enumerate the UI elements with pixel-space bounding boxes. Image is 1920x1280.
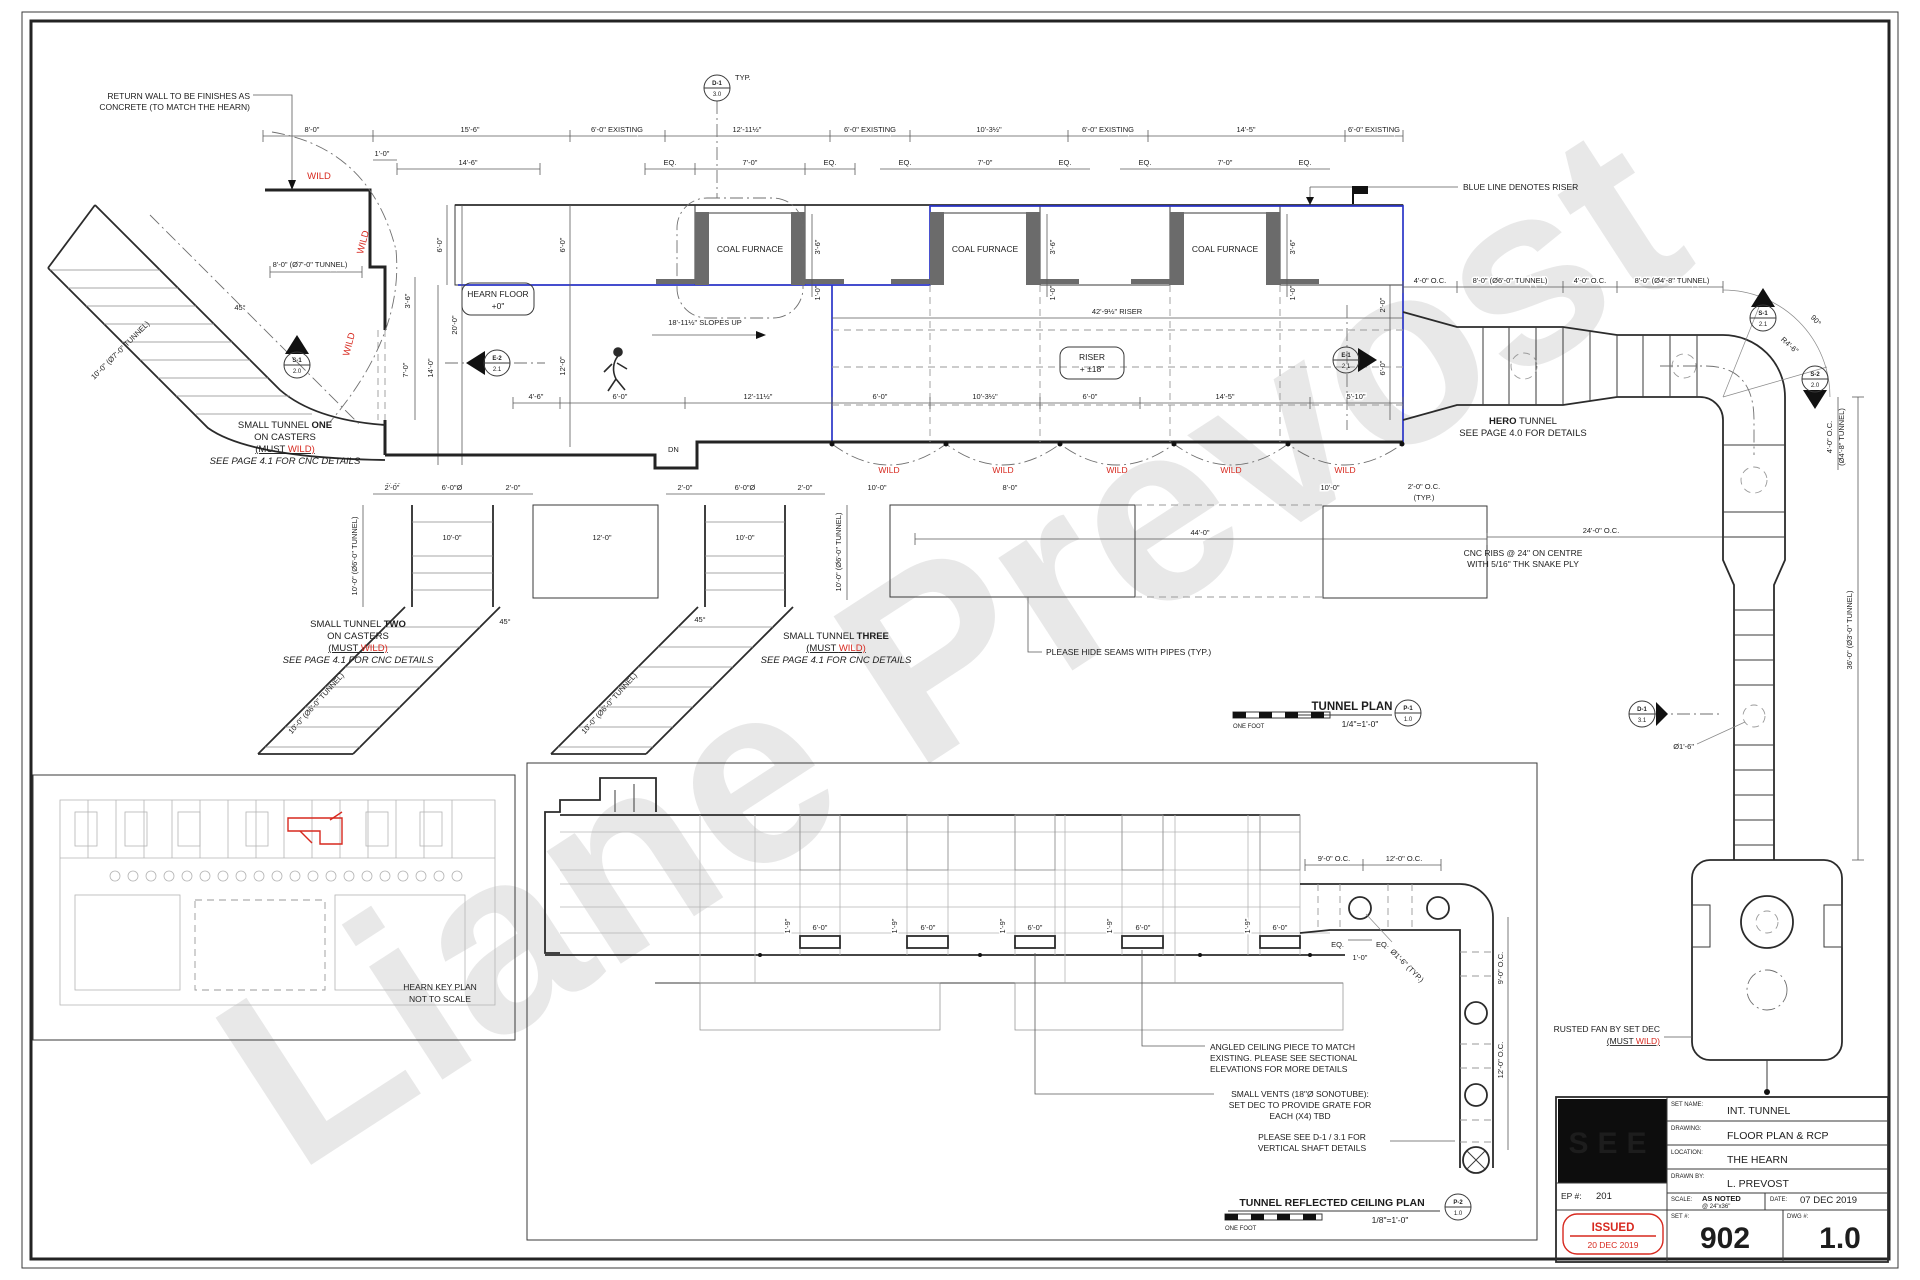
dim-label: 7'-0": [401, 362, 410, 377]
set-number: 902: [1700, 1222, 1750, 1255]
svg-text:1/8"=1'-0": 1/8"=1'-0": [1372, 1215, 1409, 1225]
svg-text:2.1: 2.1: [1759, 322, 1768, 328]
svg-text:TUNNEL PLAN: TUNNEL PLAN: [1312, 701, 1393, 713]
dim-label: 1'-0": [1288, 285, 1297, 300]
field-label: SET #:: [1671, 1214, 1690, 1220]
svg-text:Ø1'-6" (TYP.): Ø1'-6" (TYP.): [1389, 947, 1427, 985]
coal-furnace-3: COAL FURNACE EQ. 7'-0" EQ. 3'-6" 1'-0": [1120, 158, 1330, 300]
date-value: 07 DEC 2019: [1800, 1195, 1857, 1206]
svg-text:1.0: 1.0: [1404, 717, 1413, 723]
dim-label: 1'-0": [813, 285, 822, 300]
svg-text:HEARN FLOOR: HEARN FLOOR: [467, 289, 528, 299]
furnace-label: COAL FURNACE: [952, 244, 1019, 254]
dim-label: 15'-6": [460, 125, 479, 134]
dim-label: 6'-0"Ø: [735, 483, 756, 492]
svg-text:9'-0" O.C.: 9'-0" O.C.: [1318, 854, 1350, 863]
svg-text:(MUST WILD): (MUST WILD): [806, 643, 865, 654]
coal-furnaces: COAL FURNACE EQ. 7'-0" EQ. 3'-6" 1'-0" C…: [645, 158, 1330, 300]
dim-label: 8'-0" (Ø7'-0" TUNNEL): [273, 260, 348, 269]
svg-text:(MUST WILD): (MUST WILD): [1607, 1036, 1660, 1046]
marker-e2-21: E-2 2.1: [445, 350, 545, 376]
dim-label: 10'-0" (Ø6'-0" TUNNEL): [286, 671, 346, 736]
field-label: LOCATION:: [1671, 1150, 1703, 1156]
dim-label: 4'-0" O.C.: [1414, 276, 1446, 285]
dim-label: 10'-0" (Ø6'-0" TUNNEL): [834, 512, 843, 591]
svg-text:(MUST WILD): (MUST WILD): [255, 444, 314, 455]
dim-label: 6'-0" EXISTING: [1348, 125, 1400, 134]
dim-label: R4'-6": [1779, 335, 1800, 356]
svg-text:1'-9": 1'-9": [1105, 918, 1114, 933]
vent-grate: [800, 936, 840, 948]
field-label: DRAWN BY:: [1671, 1174, 1705, 1180]
svg-text:ONE FOOT: ONE FOOT: [1233, 724, 1265, 730]
dim-label: 4'-6": [529, 392, 544, 401]
rcp-marker-id: P-2: [1453, 1200, 1463, 1206]
svg-text:1'-9": 1'-9": [890, 918, 899, 933]
svg-text:2.0: 2.0: [293, 369, 302, 375]
tunnel-one-label: SMALL TUNNEL: [238, 420, 312, 431]
typ-label: TYP.: [735, 73, 751, 82]
dim-label: 12'-0": [558, 356, 567, 375]
field-label: DWG #:: [1787, 1214, 1809, 1220]
scale-figure: [604, 348, 627, 391]
svg-text:12'-0" O.C.: 12'-0" O.C.: [1386, 854, 1423, 863]
svg-text:SEE PAGE 4.1 FOR CNC DETAILS: SEE PAGE 4.1 FOR CNC DETAILS: [761, 655, 912, 666]
svg-text:S-1: S-1: [292, 358, 302, 364]
dwg-number: 1.0: [1819, 1222, 1861, 1255]
dim-label: 4'-0" O.C.: [1825, 421, 1834, 453]
svg-text:TUNNEL REFLECTED CEILING PLAN: TUNNEL REFLECTED CEILING PLAN: [1239, 1197, 1424, 1209]
vent-grate: [1015, 936, 1055, 948]
dim-label: 6'-0": [558, 237, 567, 252]
dim-label: (Ø4'-8" TUNNEL): [1837, 408, 1846, 466]
dn-label: DN: [668, 445, 679, 454]
svg-text:S-2: S-2: [1810, 372, 1820, 378]
dim-label: 14'-5": [1215, 392, 1234, 401]
see-logo-text: SEE: [1568, 1127, 1655, 1160]
coal-furnace-1: COAL FURNACE EQ. 7'-0" EQ. 3'-6" 1'-0": [645, 158, 855, 300]
svg-text:NOT TO SCALE: NOT TO SCALE: [409, 994, 471, 1004]
dim-label: 24'-0" O.C.: [1583, 526, 1620, 535]
detail-marker-id: D-1: [712, 81, 722, 87]
field-label: EP #:: [1561, 1191, 1582, 1201]
svg-text:+0": +0": [492, 301, 505, 311]
tunnel-one-casters: ON CASTERS: [254, 432, 316, 443]
svg-text:6'-0": 6'-0": [1136, 923, 1151, 932]
wild-label: WILD: [1220, 465, 1241, 475]
plan-title: TUNNEL PLAN 1/4"=1'-0" P-1 1.0 ONE FOOT: [1233, 700, 1421, 730]
svg-text:9'-0" O.C.: 9'-0" O.C.: [1496, 952, 1505, 984]
return-wall-note-line1: RETURN WALL TO BE FINISHES AS: [107, 91, 250, 101]
dim-label: Ø1'-6": [1673, 742, 1694, 751]
svg-text:SMALL TUNNEL ONE: SMALL TUNNEL ONE: [238, 420, 332, 431]
wild-label: WILD: [341, 331, 358, 357]
dim-label: 3'-6": [1288, 239, 1297, 254]
dim-label: 10'-0": [442, 533, 461, 542]
svg-text:RUSTED FAN BY SET DEC: RUSTED FAN BY SET DEC: [1554, 1024, 1660, 1034]
tunnel-three-label: SMALL TUNNEL: [783, 631, 857, 642]
svg-text:SMALL TUNNEL TWO: SMALL TUNNEL TWO: [310, 619, 406, 630]
dim-label: 2'-0": [1378, 297, 1387, 312]
dim-label: 8'-0" (Ø6'-0" TUNNEL): [1473, 276, 1548, 285]
slopes-up-label: 18'-11½" SLOPES UP: [668, 318, 742, 327]
svg-text:12'-0" O.C.: 12'-0" O.C.: [1496, 1042, 1505, 1079]
fan-room: [1692, 860, 1842, 1095]
field-label: SCALE:: [1671, 1197, 1693, 1203]
furnace-label: COAL FURNACE: [717, 244, 784, 254]
rcp-duct: 9'-0" O.C. 12'-0" O.C. EQ. EQ. 1'-0" Ø1'…: [1300, 854, 1508, 1173]
dim-label: 3'-6": [813, 239, 822, 254]
svg-text:2.0: 2.0: [1811, 383, 1820, 389]
dim-label: 3'-6": [403, 293, 412, 308]
svg-text:+ ±18": + ±18": [1080, 364, 1104, 374]
plan-scale-bar: ONE FOOT: [1233, 712, 1330, 730]
return-wall: WILD WILD WILD 8'-0" (Ø7'-0" TUNNEL): [265, 132, 397, 455]
svg-text:1/4"=1'-0": 1/4"=1'-0": [1342, 719, 1379, 729]
drawing-sheet: Liane Prevost RETURN WALL TO BE FINISHES…: [0, 0, 1920, 1280]
svg-text:BLUE LINE DENOTES RISER: BLUE LINE DENOTES RISER: [1463, 182, 1578, 192]
svg-text:SEE PAGE 4.0 FOR DETAILS: SEE PAGE 4.0 FOR DETAILS: [1459, 428, 1586, 439]
dim-label: 6'-0" EXISTING: [844, 125, 896, 134]
dim-label: (TYP.): [1414, 493, 1435, 502]
riser-tag: RISER: [1079, 352, 1105, 362]
dim-label: 7'-0": [1218, 158, 1233, 167]
key-plan-highlight: [288, 812, 342, 844]
riser-flag-icon: [1352, 186, 1368, 204]
dim-label: 45°: [234, 303, 245, 312]
dim-label: 4'-0" O.C.: [1574, 276, 1606, 285]
svg-text:2.1: 2.1: [493, 367, 502, 373]
svg-text:ISSUED: ISSUED: [1592, 1222, 1635, 1234]
wild-label: WILD: [1106, 465, 1127, 475]
dim-label: 10'-3½": [976, 125, 1002, 134]
dim-label: 2'-0": [798, 483, 813, 492]
dim-label: 12'-0": [592, 533, 611, 542]
title-block: SEE SET NAME: INT. TUNNEL DRAWING: FLOOR…: [1556, 1097, 1888, 1262]
dim-label: 90°: [1809, 313, 1823, 327]
dim-label: 6'-0" EXISTING: [1082, 125, 1134, 134]
svg-text:1.0: 1.0: [1454, 1211, 1463, 1217]
plan-marker-id: P-1: [1403, 706, 1413, 712]
svg-text:EXISTING. PLEASE SEE SECTIONA: EXISTING. PLEASE SEE SECTIONAL: [1210, 1053, 1358, 1063]
svg-text:PLEASE HIDE SEAMS WITH PIPES (: PLEASE HIDE SEAMS WITH PIPES (TYP.): [1046, 647, 1211, 657]
svg-text:EQ.: EQ.: [1331, 940, 1344, 949]
dim-label: 2'-0": [678, 483, 693, 492]
dim-label: 44'-0": [1190, 528, 1209, 537]
key-plan-label: HEARN KEY PLAN: [403, 982, 477, 992]
furnace-label: COAL FURNACE: [1192, 244, 1259, 254]
dim-label: 7'-0": [743, 158, 758, 167]
small-tunnel-two: 10'-0" 10'-0" (Ø6'-0" TUNNEL) 45° 10'-0"…: [258, 505, 511, 754]
marker-d1-31: D-1 3.1: [1629, 701, 1723, 727]
svg-text:6'-0": 6'-0": [1273, 923, 1288, 932]
dim-label: 14'-0": [426, 358, 435, 377]
dim-label: 2'-0" O.C.: [1408, 482, 1440, 491]
hatch-block: [533, 505, 658, 598]
location-value: THE HEARN: [1727, 1154, 1788, 1166]
svg-text:1'-9": 1'-9": [1243, 918, 1252, 933]
svg-text:1'-0": 1'-0": [1353, 953, 1368, 962]
svg-text:3.1: 3.1: [1638, 718, 1647, 724]
dim-label: 45°: [694, 615, 705, 624]
dim-row-top2: 14'-6" 1'-0": [373, 149, 540, 175]
dim-label: 6'-0": [613, 392, 628, 401]
dim-label: 14'-6": [458, 158, 477, 167]
scale-value: AS NOTED: [1702, 1194, 1741, 1203]
dim-label: 6'-0"Ø: [442, 483, 463, 492]
field-label: DRAWING:: [1671, 1126, 1702, 1132]
dim-label: 10'-0": [735, 533, 754, 542]
svg-text:6'-0": 6'-0": [813, 923, 828, 932]
return-wall-note-line2: CONCRETE (TO MATCH THE HEARN): [99, 102, 250, 112]
dim-label: 8'-0" (Ø4'-8" TUNNEL): [1635, 276, 1710, 285]
svg-text:1'-9": 1'-9": [998, 918, 1007, 933]
svg-text:EACH (X4) TBD: EACH (X4) TBD: [1269, 1111, 1330, 1121]
svg-text:HERO TUNNEL: HERO TUNNEL: [1489, 416, 1557, 427]
dim-label: 2'-0": [506, 483, 521, 492]
marker-s1-20: S-1 2.0: [284, 335, 310, 378]
dim-label: EQ.: [899, 158, 912, 167]
dim-label: 10'-0" (Ø7'-0" TUNNEL): [89, 319, 152, 382]
svg-text:2.1: 2.1: [1342, 364, 1351, 370]
rcp-title: TUNNEL REFLECTED CEILING PLAN 1/8"=1'-0"…: [1225, 1194, 1471, 1232]
dim-label: 45°: [499, 617, 510, 626]
svg-text:(MUST WILD): (MUST WILD): [328, 643, 387, 654]
wild-label: WILD: [1334, 465, 1355, 475]
dim-label: 1'-0": [1048, 285, 1057, 300]
issued-stamp: ISSUED 20 DEC 2019: [1563, 1214, 1663, 1254]
vent-grate: [1260, 936, 1300, 948]
svg-text:6'-0": 6'-0": [921, 923, 936, 932]
svg-text:D-1: D-1: [1637, 707, 1647, 713]
vent-grate: [907, 936, 948, 948]
svg-text:6'-0": 6'-0": [1028, 923, 1043, 932]
dim-label: 12'-11½": [744, 392, 773, 401]
dim-label: 5'-10": [1346, 392, 1365, 401]
dim-label: 6'-0": [1378, 360, 1387, 375]
svg-text:E-2: E-2: [492, 356, 502, 362]
marker-s2-20: S-2 2.0: [1802, 366, 1828, 409]
dim-label: 1'-0": [375, 149, 390, 158]
dim-label: EQ.: [664, 158, 677, 167]
svg-text:PLEASE SEE D-1 / 3.1 FOR: PLEASE SEE D-1 / 3.1 FOR: [1258, 1132, 1366, 1142]
detail-marker-sheet: 3.0: [713, 92, 722, 98]
set-name-value: INT. TUNNEL: [1727, 1105, 1791, 1117]
small-tunnel-one: 10'-0" (Ø7'-0" TUNNEL) 45° SMALL TUNNEL …: [48, 205, 385, 467]
dim-label: 36'-0" (Ø3'-0" TUNNEL): [1845, 590, 1854, 669]
field-label: SET NAME:: [1671, 1102, 1704, 1108]
svg-text:E-1: E-1: [1341, 353, 1351, 359]
dim-label: 6'-0": [873, 392, 888, 401]
dim-label: 8'-0": [1003, 483, 1018, 492]
dim-label: 10'-0": [1320, 483, 1339, 492]
dim-label: EQ.: [1299, 158, 1312, 167]
svg-text:SEE PAGE 4.1 FOR CNC DETAILS: SEE PAGE 4.1 FOR CNC DETAILS: [283, 655, 434, 666]
dim-row-top: 8'-0" 15'-6" 6'-0" EXISTING 12'-11½" 6'-…: [263, 125, 1403, 142]
svg-text:SMALL TUNNEL THREE: SMALL TUNNEL THREE: [783, 631, 889, 642]
riser-length-dim: 42'-9½" RISER: [1092, 307, 1143, 316]
rcp-notes: ANGLED CEILING PIECE TO MATCH EXISTING. …: [1035, 950, 1455, 1153]
ep-value: 201: [1596, 1191, 1612, 1202]
dim-label: 8'-0": [305, 125, 320, 134]
svg-text:20 DEC 2019: 20 DEC 2019: [1587, 1240, 1638, 1250]
svg-text:SMALL VENTS (18"Ø SONOTUBE):: SMALL VENTS (18"Ø SONOTUBE):: [1231, 1089, 1369, 1099]
svg-text:EQ.: EQ.: [1376, 940, 1389, 949]
dim-label: EQ.: [824, 158, 837, 167]
rcp-scale-bar: ONE FOOT: [1225, 1214, 1322, 1232]
dim-label: 3'-6": [1048, 239, 1057, 254]
wild-label: WILD: [307, 171, 331, 182]
tunnel-one-see-page: SEE PAGE 4.1 FOR CNC DETAILS: [210, 456, 361, 467]
dim-label: 6'-0" EXISTING: [591, 125, 643, 134]
tunnel-two-label: SMALL TUNNEL: [310, 619, 384, 630]
coal-furnace-2: COAL FURNACE EQ. 7'-0" EQ. 3'-6" 1'-0": [880, 158, 1090, 300]
vent-grate: [1122, 936, 1163, 948]
dim-label: 10'-0": [867, 483, 886, 492]
wild-label: WILD: [992, 465, 1013, 475]
dim-label: 10'-0" (Ø6'-0" TUNNEL): [350, 516, 359, 595]
dim-label: EQ.: [1139, 158, 1152, 167]
drawing-value: FLOOR PLAN & RCP: [1727, 1130, 1829, 1142]
dim-label: 2'-0": [385, 483, 400, 492]
dim-label: 6'-0": [1083, 392, 1098, 401]
dim-label: 10'-3½": [972, 392, 998, 401]
svg-text:VERTICAL SHAFT DETAILS: VERTICAL SHAFT DETAILS: [1258, 1143, 1367, 1153]
svg-text:SET DEC TO PROVIDE GRATE FOR: SET DEC TO PROVIDE GRATE FOR: [1229, 1100, 1371, 1110]
dim-label: 6'-0": [435, 237, 444, 252]
dim-label: 7'-0": [978, 158, 993, 167]
grate-dims: 1'-9" 6'-0" 1'-9" 6'-0" 1'-9" 6'-0" 1'-9…: [783, 918, 1288, 933]
hero-tunnel-label: HERO: [1489, 416, 1516, 427]
drawn-by-value: L. PREVOST: [1727, 1178, 1789, 1190]
svg-text:ON CASTERS: ON CASTERS: [327, 631, 389, 642]
svg-text:ELEVATIONS FOR MORE DETAILS: ELEVATIONS FOR MORE DETAILS: [1210, 1064, 1348, 1074]
rusted-fan-note: RUSTED FAN BY SET DEC (MUST WILD): [1554, 1024, 1692, 1046]
dim-label: EQ.: [1059, 158, 1072, 167]
svg-text:S-1: S-1: [1758, 311, 1768, 317]
svg-text:ONE FOOT: ONE FOOT: [1225, 1226, 1257, 1232]
svg-text:1'-9": 1'-9": [783, 918, 792, 933]
dim-label: 14'-5": [1236, 125, 1255, 134]
wild-label: WILD: [878, 465, 899, 475]
svg-text:ANGLED CEILING PIECE TO MATCH: ANGLED CEILING PIECE TO MATCH: [1210, 1042, 1355, 1052]
hearn-floor-tag: HEARN FLOOR +0": [462, 283, 534, 315]
svg-text:@ 24"x36": @ 24"x36": [1702, 1204, 1730, 1210]
cnc-ribs-note-line1: CNC RIBS @ 24" ON CENTRE: [1464, 548, 1583, 558]
return-wall-note: RETURN WALL TO BE FINISHES AS CONCRETE (…: [99, 91, 296, 190]
dim-label: 12'-11½": [733, 125, 762, 134]
dim-label: 20'-0": [450, 315, 459, 334]
cnc-ribs-note-line2: WITH 5/16" THK SNAKE PLY: [1467, 559, 1579, 569]
field-label: DATE:: [1770, 1197, 1788, 1203]
